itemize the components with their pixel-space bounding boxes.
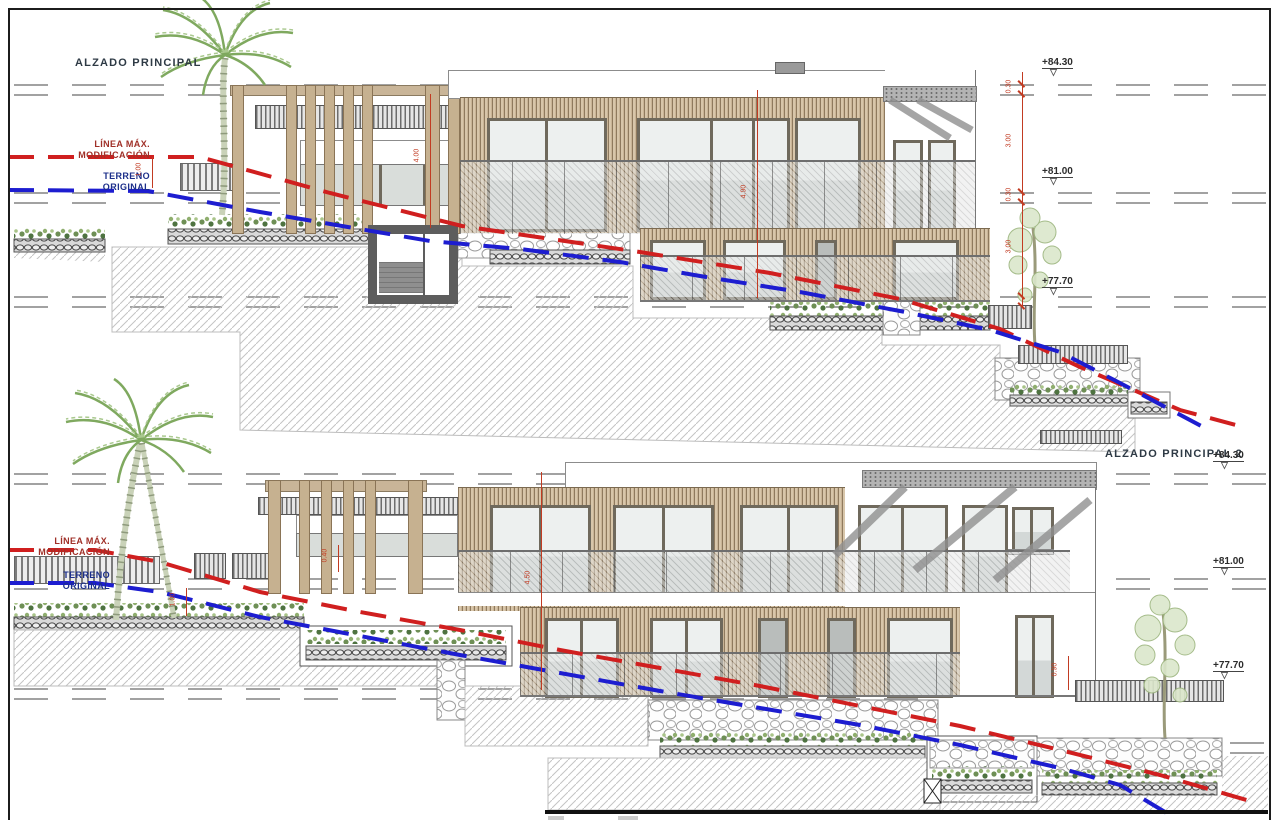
terrain-label-2: ORIGINAL [28,182,150,193]
dimension-chain-line [1022,72,1023,308]
level-value: +77.70 [1213,660,1244,672]
level-marker: +84.30 ▽ [1213,450,1244,469]
original-terrain-label: TERRENO ORIGINAL [28,171,150,193]
dim-value: 0.40 [322,543,329,569]
level-triangle-icon: ▽ [1221,567,1244,575]
max-line-label-1: LÍNEA MÁX. [0,536,110,547]
level-marker: +84.30 ▽ [1042,57,1073,76]
pergola-struts [835,487,1090,580]
level-triangle-icon: ▽ [1221,671,1244,679]
dim-value: 1.00 [170,587,177,613]
level-value: +81.00 [1213,556,1244,568]
dim-line [152,157,153,188]
level-marker: +77.70 ▽ [1042,276,1073,295]
dim-line [541,472,542,690]
original-terrain-line [8,583,1175,818]
level-value: +84.30 [1042,57,1073,69]
dim-value: 0.30 [1006,182,1013,208]
level-triangle-icon: ▽ [1050,177,1073,185]
dim-value: 4.50 [525,565,532,591]
dim-value: 3.00 [1006,128,1013,154]
dim-value: 1.00 [136,157,143,183]
scale-fragment [618,816,638,820]
terrain-label-2: ORIGINAL [0,581,110,592]
terrain-label-1: TERRENO [0,570,110,581]
dim-value: 0.30 [1006,74,1013,100]
dim-line [757,90,758,298]
section-marker [924,779,941,803]
max-line-label: LÍNEA MÁX. MODIFICACIÓN [0,536,110,558]
level-value: +77.70 [1042,276,1073,288]
elevation-drawing-sheet: ALZADO PRINCIPAL LÍNEA MÁX. MODIFICACIÓN… [0,0,1280,820]
dim-line [430,94,431,228]
level-marker: +81.00 ▽ [1042,166,1073,185]
level-marker: +77.70 ▽ [1213,660,1244,679]
dim-value: 0.90 [1052,657,1059,683]
level-triangle-icon: ▽ [1050,287,1073,295]
level-triangle-icon: ▽ [1050,68,1073,76]
max-line-label-1: LÍNEA MÁX. [28,139,150,150]
dim-value: 4.00 [414,143,421,169]
dim-line [338,545,339,572]
dim-value: 3.00 [1006,234,1013,260]
level-value: +81.00 [1042,166,1073,178]
dim-value: 4.90 [741,179,748,205]
dim-line [186,588,187,616]
tree [1135,595,1195,738]
original-terrain-label: TERRENO ORIGINAL [0,570,110,592]
level-marker: +81.00 ▽ [1213,556,1244,575]
palm-tree [155,0,293,215]
overlay-layer [0,0,1280,820]
pergola-struts [890,100,972,138]
level-value: +84.30 [1213,450,1244,462]
max-line-label-2: MODIFICACIÓN [28,150,150,161]
level-triangle-icon: ▽ [1221,461,1244,469]
bottom-cut-line [545,810,1268,814]
dim-line [1068,656,1069,690]
scale-fragment [548,816,564,820]
max-line-label-2: MODIFICACIÓN [0,547,110,558]
max-line-label: LÍNEA MÁX. MODIFICACIÓN [28,139,150,161]
terrain-label-1: TERRENO [28,171,150,182]
sheet1-title: ALZADO PRINCIPAL [75,57,202,69]
max-modification-line [8,550,1257,803]
